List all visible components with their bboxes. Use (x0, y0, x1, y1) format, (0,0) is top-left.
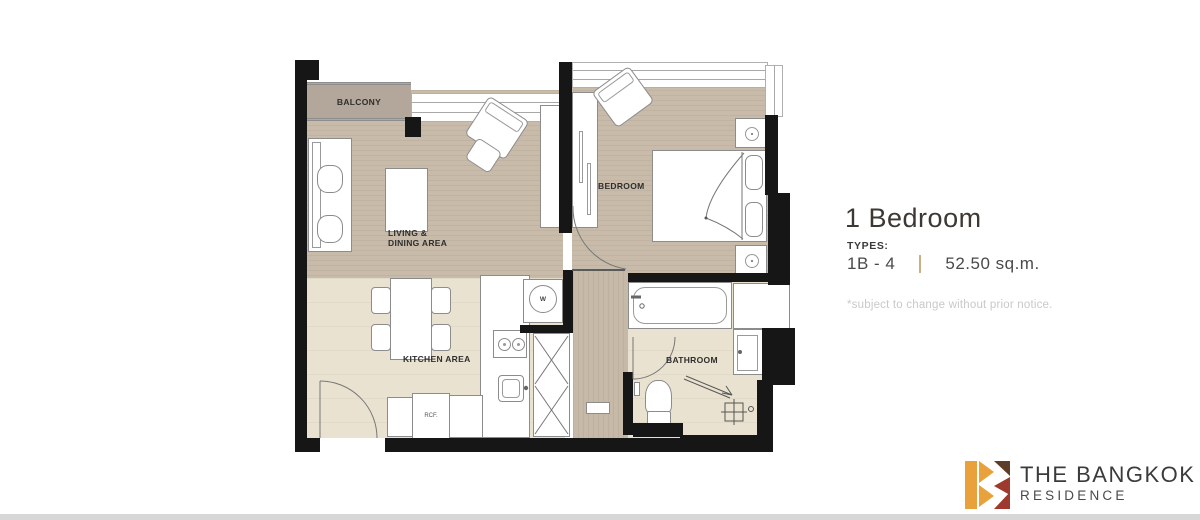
bedroom-label: BEDROOM (598, 181, 645, 191)
blanket-apex-dot (705, 217, 708, 220)
floor-plan: BALCONY (295, 25, 800, 460)
logo-orange-chevron (979, 461, 994, 483)
floorplan-page: BALCONY (0, 0, 1200, 520)
living-room-label: LIVING & DINING AREA (388, 228, 447, 248)
logo-brown-triangle (994, 461, 1010, 476)
living-label-line1: LIVING & (388, 228, 447, 238)
kitchen-label: KITCHEN AREA (403, 354, 471, 364)
brand-logo-icon (965, 461, 1010, 509)
shower-glass-arrow (722, 386, 732, 395)
plan-linework (295, 25, 800, 460)
entrance-door-arc (320, 381, 377, 438)
logo-orange-bar (965, 461, 977, 509)
brand-logo: THE BANGKOK RESIDENCE (965, 461, 1195, 509)
logo-red-leg (994, 492, 1010, 509)
living-label-line2: DINING AREA (388, 238, 447, 248)
unit-area: 52.50 sq.m. (945, 254, 1039, 274)
shower-knob (749, 407, 754, 412)
bedroom-door-arc (573, 206, 626, 269)
bed-blanket-fold (706, 153, 744, 239)
logo-orange-chevron (979, 485, 994, 507)
disclaimer-text: *subject to change without prior notice. (847, 299, 1053, 311)
unit-types-label: TYPES: (847, 240, 889, 252)
closet-shelf-braces (535, 336, 568, 434)
gold-divider (919, 255, 921, 273)
unit-type-code: 1B - 4 (847, 254, 895, 274)
brand-text: THE BANGKOK RESIDENCE (1020, 461, 1195, 505)
footer-bar (0, 514, 1200, 520)
bathroom-label: BATHROOM (666, 355, 718, 365)
brand-subname: RESIDENCE (1020, 487, 1195, 505)
shower-glass (684, 376, 732, 398)
unit-title: 1 Bedroom (845, 203, 982, 234)
kitchen-faucet (524, 386, 528, 390)
bathtub-drain (640, 304, 644, 308)
vanity-faucet (738, 350, 742, 354)
brand-name: THE BANGKOK (1020, 463, 1195, 487)
unit-type-row: 1B - 4 52.50 sq.m. (847, 254, 1040, 274)
